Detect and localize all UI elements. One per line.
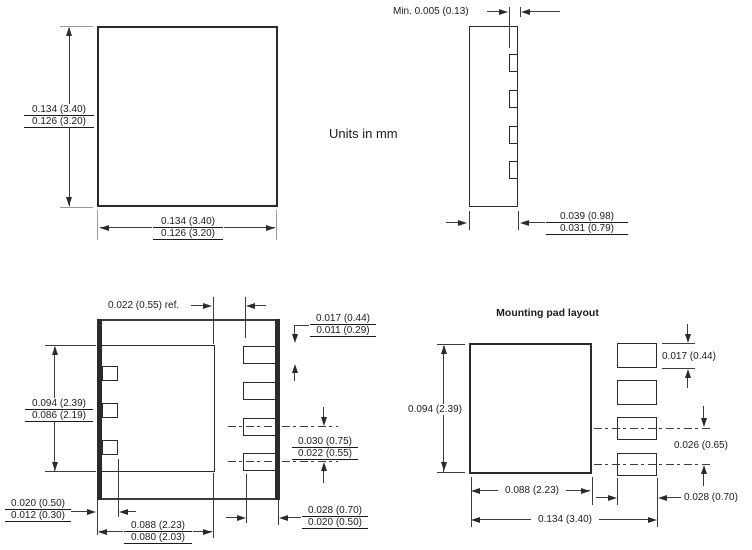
arrowhead-left [471, 517, 480, 523]
mounting-pin-pad [617, 343, 657, 368]
bottom-view-right-lead [243, 346, 276, 364]
dim-max: 0.088 (2.23) [124, 520, 192, 532]
dimension-line [288, 517, 301, 518]
bottom-view-bottom-edge [97, 498, 280, 500]
dim-max: 0.020 (0.50) [5, 498, 71, 510]
arrowhead-down [66, 197, 72, 206]
extension-line [592, 477, 593, 505]
arrowhead-up [52, 346, 58, 355]
extension-line [97, 210, 98, 240]
dimension-line [255, 305, 266, 306]
package-drawing: 0.134 (3.40) 0.126 (3.20) 0.134 (3.40) 0… [0, 0, 752, 550]
side-view-lead [509, 54, 518, 72]
dim-min: 0.080 (2.03) [124, 532, 192, 544]
dimension-line [473, 519, 531, 520]
bottom-view-left-lead [102, 366, 118, 381]
extension-line [437, 472, 465, 473]
extension-line [278, 500, 279, 525]
arrowhead-right [203, 303, 212, 309]
top-view-height-dimension: 0.134 (3.40) 0.126 (3.20) [23, 104, 95, 128]
mounting-center-pad [469, 343, 592, 474]
dimension-line [530, 11, 560, 12]
extension-line [662, 343, 695, 344]
arrowhead-left [471, 488, 480, 494]
arrowhead-up [292, 364, 298, 373]
dimension-line [323, 471, 324, 483]
extension-line [60, 26, 93, 27]
arrowhead-up [701, 465, 707, 474]
dim-min: 0.020 (0.50) [302, 517, 368, 529]
dimension-line [71, 511, 88, 512]
bottom-view-right-lead [243, 418, 276, 436]
extension-line [45, 471, 96, 472]
arrowhead-right [608, 495, 617, 501]
mounting-pin-pitch-dimension: 0.026 (0.65) [673, 440, 729, 451]
mounting-pad-layout-title: Mounting pad layout [464, 307, 631, 319]
arrowhead-right [203, 529, 212, 535]
extension-line [246, 474, 247, 523]
arrowhead-down [321, 417, 327, 426]
dim-max: 0.030 (0.75) [292, 436, 358, 448]
bottom-view-lead-inset-dimension: 0.020 (0.50) 0.012 (0.30) [4, 498, 72, 522]
arrowhead-up [321, 462, 327, 471]
arrowhead-right [648, 517, 657, 523]
mounting-center-pad-width-dimension: 0.088 (2.23) [498, 485, 566, 496]
mounting-pin-pad-width-dimension: 0.017 (0.44) [661, 351, 717, 362]
dimension-line [597, 519, 649, 520]
extension-line [213, 473, 214, 538]
dim-min: 0.086 (2.19) [25, 410, 93, 422]
dim-max: 0.028 (0.70) [302, 505, 368, 517]
dim-max: 0.039 (0.98) [546, 211, 628, 223]
bottom-view-epad-length-dimension: 0.094 (2.39) 0.086 (2.19) [24, 398, 94, 422]
centerline [594, 428, 710, 429]
mounting-pin-pad [617, 380, 657, 405]
extension-line [518, 211, 519, 230]
arrowhead-down [701, 418, 707, 427]
top-view-width-dimension: 0.134 (3.40) 0.126 (3.20) [152, 216, 224, 240]
arrowhead-right [87, 509, 96, 515]
units-note: Units in mm [328, 127, 399, 141]
bottom-view-right-lead [243, 382, 276, 400]
arrowhead-right [266, 225, 275, 231]
dimension-line [687, 378, 688, 388]
arrowhead-left [246, 303, 255, 309]
dim-min: 0.126 (3.20) [153, 228, 223, 240]
bottom-view-lead-length-dimension: 0.028 (0.70) 0.020 (0.50) [301, 505, 369, 529]
arrowhead-left [119, 509, 128, 515]
arrowhead-down [52, 462, 58, 471]
bottom-view-lead-pitch-dimension: 0.030 (0.75) 0.022 (0.55) [291, 436, 359, 460]
arrowhead-right [458, 220, 467, 226]
extension-line [276, 210, 277, 240]
dimension-line [294, 373, 295, 381]
arrowhead-down [292, 334, 298, 343]
extension-line [509, 7, 510, 48]
side-view-lead [509, 90, 518, 108]
extension-line [60, 207, 93, 208]
arrowhead-left [521, 9, 530, 15]
arrowhead-left [520, 220, 529, 226]
dimension-line [667, 497, 681, 498]
extension-line [213, 297, 214, 344]
dim-max: 0.134 (3.40) [153, 216, 223, 228]
bottom-view-right-lead [243, 453, 276, 471]
dimension-line [323, 407, 324, 417]
side-view-thickness-dimension: 0.039 (0.98) 0.031 (0.79) [545, 211, 629, 235]
arrowhead-up [441, 345, 447, 354]
extension-line [617, 478, 618, 505]
bottom-view-left-lead [102, 440, 118, 455]
dim-min: 0.031 (0.79) [546, 223, 628, 235]
arrowhead-right [499, 9, 508, 15]
extension-line [469, 211, 470, 230]
arrowhead-left [98, 529, 107, 535]
arrowhead-up [66, 27, 72, 36]
dimension-line [294, 326, 295, 334]
dimension-line [128, 511, 136, 512]
mounting-pad-height-dimension: 0.094 (2.39) [403, 404, 467, 415]
bottom-view-exposed-pad [101, 345, 215, 472]
side-view-lead [509, 126, 518, 144]
bottom-view-lead-width-dimension: 0.017 (0.44) 0.011 (0.29) [309, 313, 377, 337]
dim-min: 0.011 (0.29) [310, 325, 376, 337]
dim-max: 0.017 (0.44) [310, 313, 376, 325]
dim-max: 0.134 (3.40) [24, 104, 94, 116]
dimension-line [703, 406, 704, 418]
arrowhead-down [685, 334, 691, 343]
extension-line [657, 478, 658, 527]
dimension-line [703, 474, 704, 486]
arrowhead-left [658, 495, 667, 501]
dim-min: 0.126 (3.20) [24, 116, 94, 128]
bottom-view-top-edge [97, 319, 280, 321]
centerline [228, 426, 338, 427]
top-view-body-outline [97, 26, 278, 207]
dimension-line [529, 222, 545, 223]
bottom-view-pad-offset-ref: 0.022 (0.55) ref. [107, 300, 180, 311]
dim-min: 0.012 (0.30) [5, 510, 71, 522]
mounting-pin-pad-length-dimension: 0.028 (0.70) [683, 492, 739, 503]
dim-max: 0.094 (2.39) [25, 398, 93, 410]
mounting-pin-pad [617, 417, 657, 440]
arrowhead-up [685, 369, 691, 378]
mounting-overall-width-dimension: 0.134 (3.40) [531, 514, 599, 525]
bottom-view-epad-width-dimension: 0.088 (2.23) 0.080 (2.03) [123, 520, 193, 544]
bottom-view-left-lead [102, 403, 118, 418]
arrowhead-left [100, 225, 109, 231]
arrowhead-down [441, 462, 447, 471]
dim-min: 0.022 (0.55) [292, 448, 358, 460]
arrowhead-right [581, 488, 590, 494]
side-view-lead [509, 161, 518, 179]
centerline [594, 464, 710, 465]
arrowhead-left [279, 515, 288, 521]
side-view-standoff-dimension: Min. 0.005 (0.13) [392, 6, 470, 17]
